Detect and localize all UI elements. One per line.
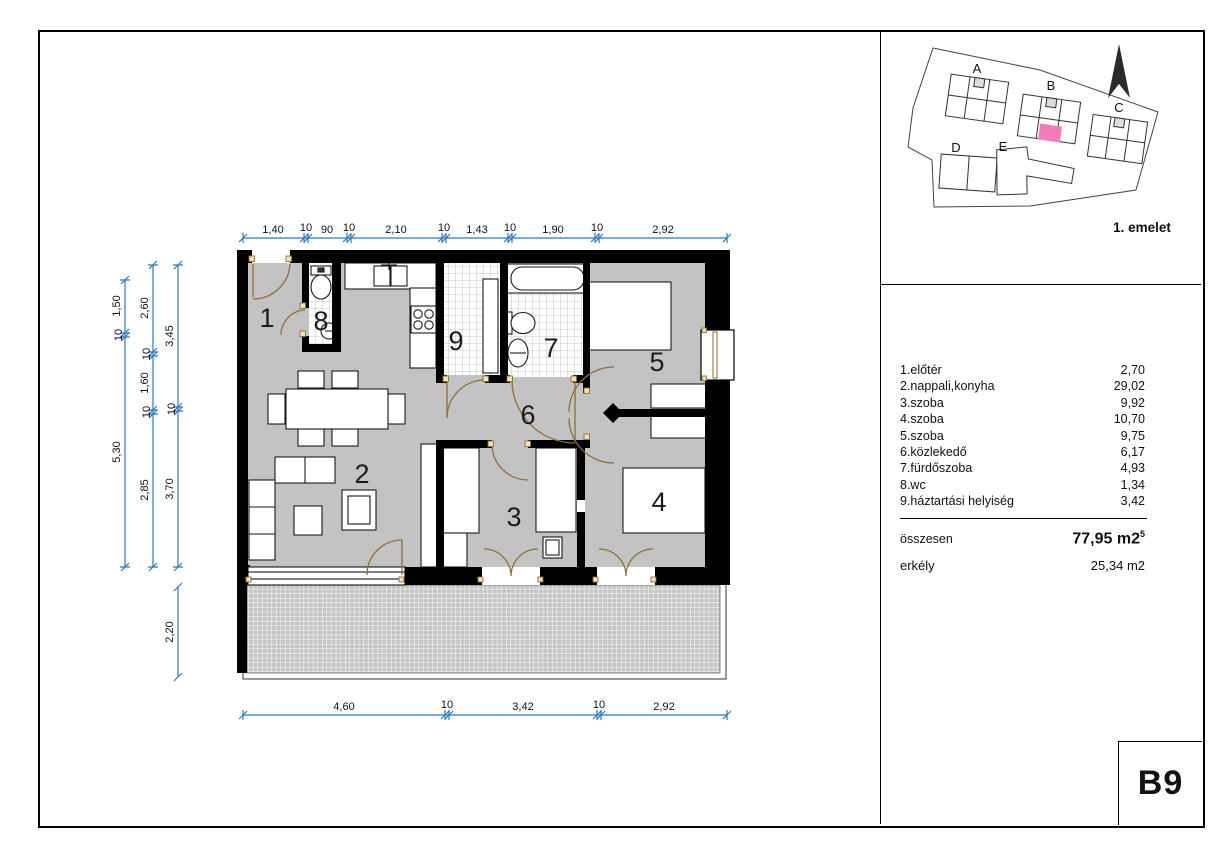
balcony-row: erkély 25,34 m2	[900, 558, 1145, 574]
building-A	[945, 74, 1008, 124]
kitchen-sink	[374, 266, 390, 286]
svg-text:10: 10	[166, 403, 178, 415]
table-row: 5.szoba9,75	[900, 428, 1145, 444]
wardrobe-3	[536, 448, 576, 532]
balcony	[237, 583, 726, 679]
svg-text:2,92: 2,92	[653, 701, 674, 713]
bed-5	[589, 282, 671, 350]
svg-text:1,40: 1,40	[262, 224, 283, 236]
svg-text:10: 10	[504, 222, 516, 234]
balcony-label: erkély	[900, 558, 935, 574]
total-row: összesen 77,95 m25	[900, 526, 1145, 548]
svg-text:10: 10	[113, 329, 125, 341]
total-value: 77,95 m25	[1072, 526, 1145, 548]
room-label-3: 3	[506, 502, 521, 532]
svg-text:10: 10	[591, 222, 603, 234]
svg-text:1,50: 1,50	[111, 295, 123, 316]
window-living	[248, 567, 405, 585]
svg-text:4,60: 4,60	[333, 701, 354, 713]
table-row: 8.wc1,34	[900, 477, 1145, 493]
table-divider	[900, 518, 1147, 519]
coffee-table	[294, 506, 322, 535]
svg-text:3,70: 3,70	[164, 478, 176, 499]
balcony-value: 25,34 m2	[1091, 558, 1145, 574]
unit-label: B9	[1138, 764, 1183, 803]
svg-text:90: 90	[321, 224, 333, 236]
svg-text:1,43: 1,43	[466, 224, 487, 236]
svg-text:10: 10	[441, 699, 453, 711]
floor-plan: 1 2 3 4 5 6 7 8 9 1,40 10 90 10 2,10 10	[100, 200, 780, 745]
svg-text:10: 10	[141, 348, 153, 360]
room-label-6: 6	[520, 400, 535, 430]
svg-text:1,60: 1,60	[139, 372, 151, 393]
room-label-2: 2	[354, 459, 369, 489]
svg-text:10: 10	[343, 222, 355, 234]
svg-text:2,10: 2,10	[385, 224, 406, 236]
table-row: 4.szoba10,70	[900, 411, 1145, 427]
svg-text:3,45: 3,45	[164, 325, 176, 346]
svg-text:1,90: 1,90	[542, 224, 563, 236]
table-row: 2.nappali,konyha29,02	[900, 378, 1145, 394]
total-label: összesen	[900, 531, 953, 547]
room-label-8: 8	[313, 306, 328, 336]
building-D	[939, 154, 997, 192]
north-arrow-icon	[1108, 44, 1130, 98]
table-row: 9.háztartási helyiség3,42	[900, 493, 1145, 509]
svg-text:2,92: 2,92	[652, 224, 673, 236]
wardrobe-4	[651, 415, 708, 438]
room-label-7: 7	[543, 333, 558, 363]
stove	[411, 306, 436, 333]
svg-text:2,60: 2,60	[139, 297, 151, 318]
building-C	[1087, 114, 1147, 163]
floor-label: 1. emelet	[1113, 220, 1171, 235]
room-label-1: 1	[259, 303, 274, 333]
svg-text:5,30: 5,30	[111, 441, 123, 462]
wardrobe-5	[651, 384, 708, 408]
table-row: 7.fürdőszoba4,93	[900, 460, 1145, 476]
cabinet	[421, 444, 437, 567]
svg-text:3,42: 3,42	[512, 701, 533, 713]
room-label-4: 4	[651, 487, 666, 517]
svg-text:10: 10	[141, 406, 153, 418]
entrance-opening	[252, 250, 290, 263]
svg-text:2,20: 2,20	[164, 621, 176, 642]
svg-text:A: A	[973, 61, 982, 76]
table-row: 3.szoba9,92	[900, 395, 1145, 411]
svg-text:10: 10	[438, 222, 450, 234]
room-label-9: 9	[448, 326, 463, 356]
table-row: 6.közlekedő6,17	[900, 444, 1145, 460]
dining-table	[286, 389, 388, 429]
svg-text:C: C	[1114, 100, 1123, 115]
area-table: 1.előtér2,70 2.nappali,konyha29,02 3.szo…	[900, 362, 1145, 575]
table-row: 1.előtér2,70	[900, 362, 1145, 378]
svg-text:D: D	[951, 140, 960, 155]
site-plan: A B C D E 1. emelet	[880, 30, 1202, 289]
svg-text:2,85: 2,85	[139, 479, 151, 500]
svg-text:10: 10	[593, 699, 605, 711]
bed-3	[443, 448, 479, 533]
svg-text:10: 10	[300, 222, 312, 234]
svg-text:B: B	[1047, 78, 1056, 93]
unit-label-box: B9	[1118, 741, 1202, 825]
svg-text:E: E	[999, 139, 1008, 154]
room-label-5: 5	[649, 347, 664, 377]
unit-highlight	[1038, 124, 1062, 143]
